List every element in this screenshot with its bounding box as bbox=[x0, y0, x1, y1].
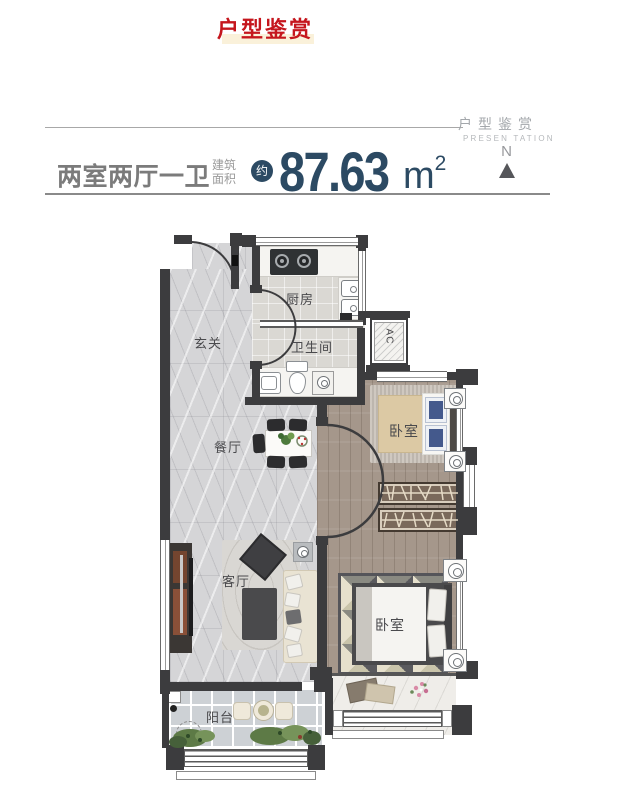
room-label-foyer: 玄关 bbox=[184, 333, 232, 352]
compass: N bbox=[492, 143, 522, 178]
room-label-kitchen: 厨房 bbox=[276, 289, 324, 308]
area-label: 建筑 面积 bbox=[212, 158, 236, 186]
room-label-balcony: 阳台 bbox=[196, 707, 244, 726]
unit-base: m bbox=[403, 155, 435, 197]
dining-plant bbox=[278, 433, 307, 447]
north-arrow-icon bbox=[499, 163, 515, 178]
bedroom-hall-door-arc bbox=[327, 425, 383, 537]
brand-cn: 户型鉴赏 bbox=[458, 114, 548, 134]
balcony-plants bbox=[169, 725, 321, 748]
page-title: 户型鉴赏 bbox=[160, 12, 370, 44]
header-rule-top bbox=[45, 127, 463, 128]
area-label-top: 建筑 bbox=[212, 158, 236, 172]
area-unit: m2 bbox=[403, 152, 446, 198]
brand-en: PRESEN TATION bbox=[463, 134, 553, 143]
bay-pillows bbox=[346, 678, 395, 704]
entry-door-arc bbox=[192, 242, 235, 287]
room-label-ac: AC bbox=[384, 328, 395, 346]
wardrobe-hangers bbox=[382, 485, 458, 527]
room-label-dining: 餐厅 bbox=[204, 437, 252, 456]
approx-badge: 约 bbox=[251, 160, 273, 182]
room-label-living: 客厅 bbox=[212, 571, 260, 590]
area-label-bottom: 面积 bbox=[212, 172, 236, 186]
layout-name: 两室两厅一卫 bbox=[57, 157, 210, 193]
compass-letter: N bbox=[492, 143, 522, 160]
header-rule-bottom bbox=[45, 193, 550, 195]
room-label-bathroom: 卫生间 bbox=[286, 337, 338, 356]
floor-plan: 玄关 厨房 卫生间 餐厅 客厅 卧室 卧室 阳台 AC bbox=[160, 233, 480, 793]
page: 户型鉴赏 户型鉴赏 PRESEN TATION 两室两厅一卫 建筑 面积 约 8… bbox=[0, 0, 634, 807]
unit-exponent: 2 bbox=[435, 152, 447, 175]
room-label-bedroom-top: 卧室 bbox=[376, 421, 432, 441]
bay-flowers bbox=[410, 682, 428, 697]
room-label-bedroom-bottom: 卧室 bbox=[362, 615, 418, 635]
